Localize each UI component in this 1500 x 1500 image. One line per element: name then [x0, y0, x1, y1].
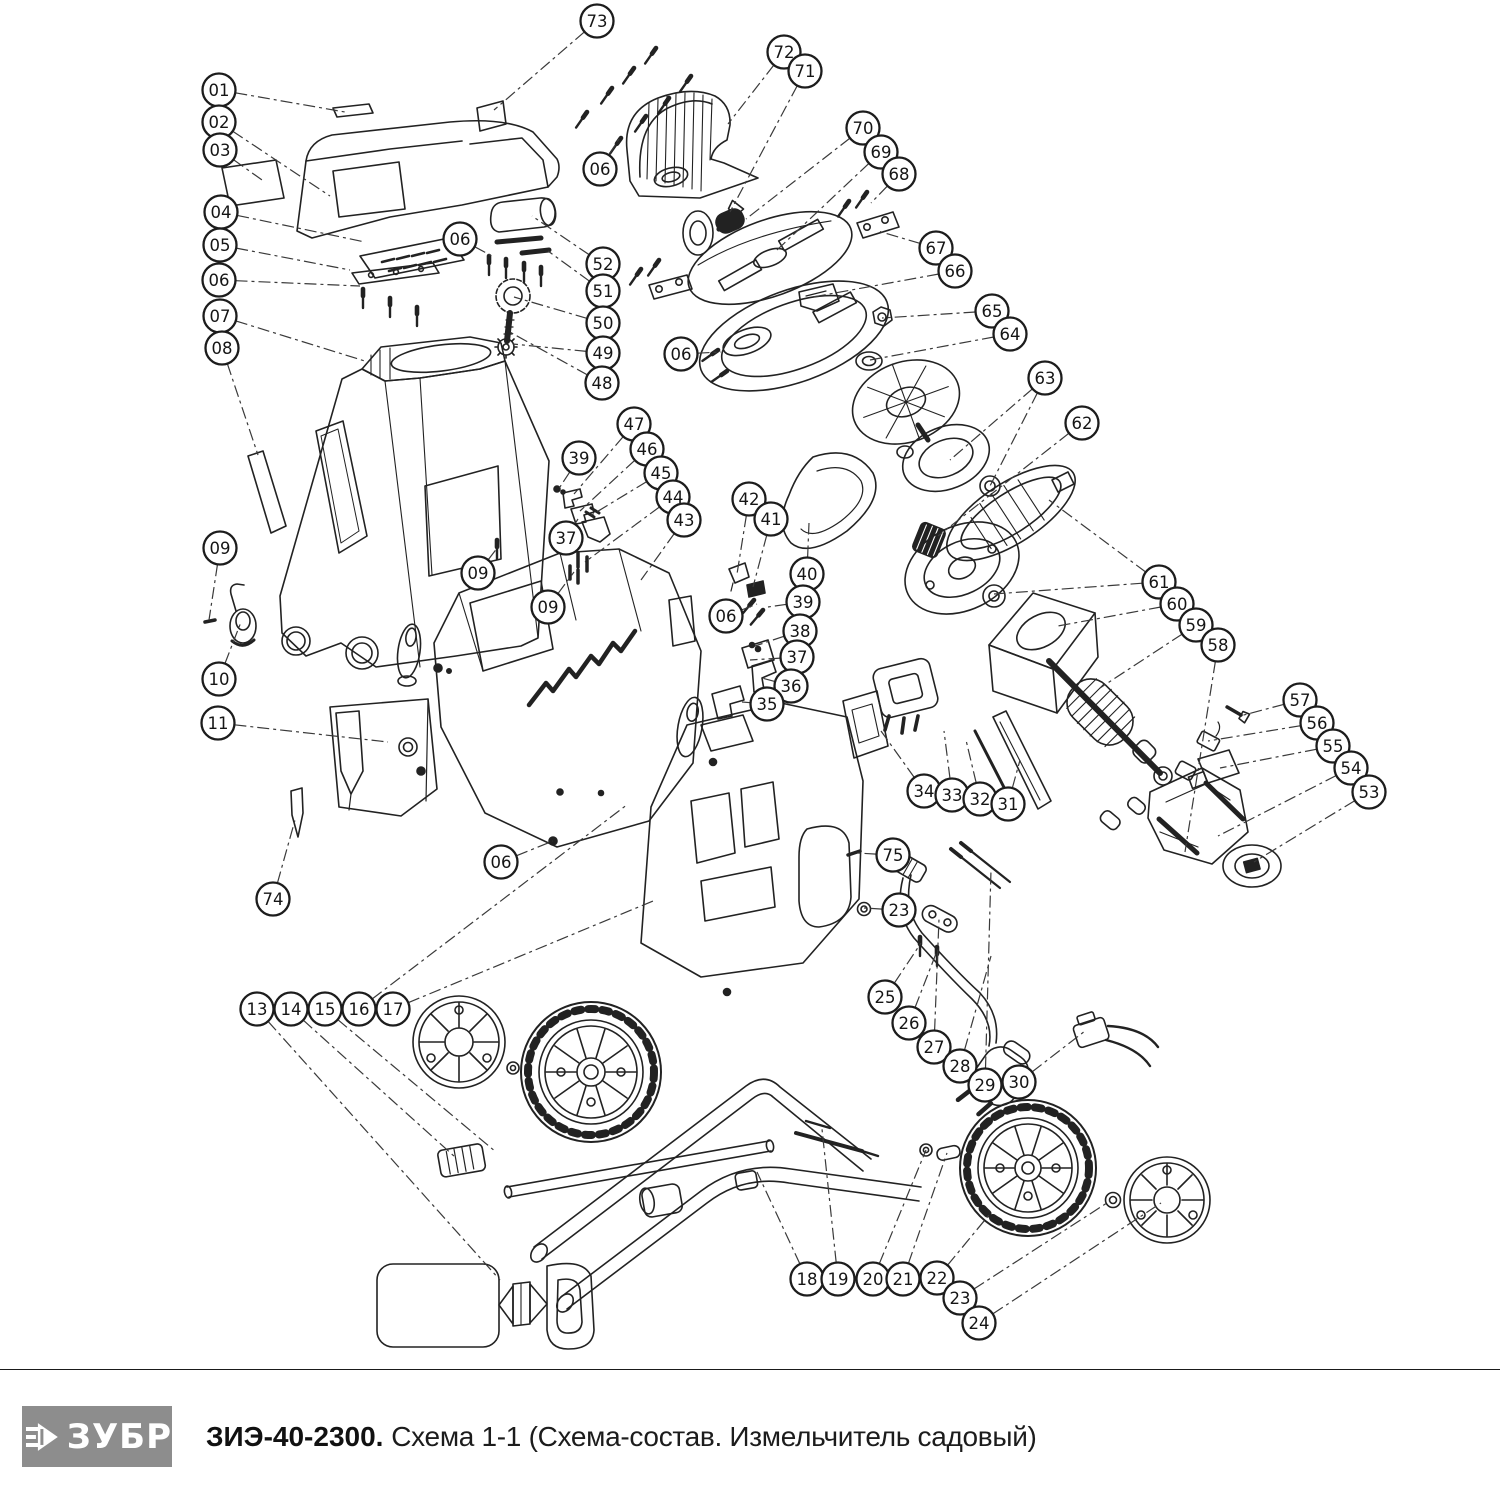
- part-motor: [890, 448, 1172, 785]
- svg-text:40: 40: [797, 565, 818, 584]
- callout-35: 35: [751, 688, 784, 721]
- leader-line-09: [558, 572, 574, 594]
- svg-text:15: 15: [315, 1000, 336, 1019]
- leader-line-07: [236, 321, 368, 362]
- svg-text:32: 32: [970, 790, 991, 809]
- leader-line-30: [1032, 1031, 1085, 1072]
- leader-line-13: [268, 1021, 500, 1280]
- callout-06: 06: [710, 600, 743, 633]
- leader-line-17: [408, 901, 653, 1003]
- leader-line-59: [1100, 634, 1182, 688]
- svg-text:10: 10: [209, 670, 230, 689]
- leader-line-11: [234, 725, 388, 742]
- zubr-logo: ЗУБР: [22, 1406, 172, 1467]
- brand-name: ЗУБР: [67, 1417, 172, 1457]
- svg-text:37: 37: [556, 529, 577, 548]
- svg-text:42: 42: [739, 490, 760, 509]
- svg-text:35: 35: [757, 695, 778, 714]
- leader-line-25: [894, 943, 921, 983]
- svg-text:34: 34: [914, 782, 935, 801]
- callout-21: 21: [887, 1263, 920, 1296]
- svg-text:06: 06: [590, 160, 611, 179]
- part-upper-funnel-housing: [280, 337, 549, 686]
- callout-48: 48: [586, 367, 619, 400]
- callout-numbers: 0102030405060708091011741314151617065251…: [202, 5, 1386, 1340]
- callout-15: 15: [309, 993, 342, 1026]
- part-pusher: [377, 1264, 594, 1349]
- leader-line-61: [994, 583, 1143, 594]
- leader-line-70: [746, 138, 850, 219]
- part-roller-and-knob: [489, 198, 557, 358]
- svg-text:02: 02: [209, 113, 230, 132]
- leader-line-55: [1220, 749, 1317, 768]
- svg-text:01: 01: [209, 81, 230, 100]
- svg-text:23: 23: [889, 901, 910, 920]
- svg-text:41: 41: [761, 510, 782, 529]
- svg-text:67: 67: [926, 239, 947, 258]
- title-block: ЗУБР ЗИЭ-40-2300. Схема 1-1 (Схема-соста…: [0, 1369, 1500, 1500]
- svg-text:49: 49: [593, 344, 614, 363]
- callout-06: 06: [485, 846, 518, 879]
- leader-line-51: [548, 251, 590, 281]
- callout-16: 16: [343, 993, 376, 1026]
- leader-line-45: [590, 482, 647, 517]
- callout-30: 30: [1003, 1066, 1036, 1099]
- svg-text:13: 13: [247, 1000, 268, 1019]
- callout-11: 11: [202, 707, 235, 740]
- leader-line-35: [742, 702, 751, 703]
- svg-text:56: 56: [1307, 714, 1328, 733]
- svg-text:14: 14: [281, 1000, 302, 1019]
- svg-text:72: 72: [774, 43, 795, 62]
- svg-text:17: 17: [383, 1000, 404, 1019]
- sticker-labels: [222, 101, 506, 533]
- callout-09: 09: [532, 591, 565, 624]
- leader-line-63: [990, 393, 1038, 486]
- leader-line-06: [236, 281, 361, 286]
- svg-text:61: 61: [1149, 573, 1170, 592]
- svg-text:05: 05: [210, 236, 231, 255]
- svg-text:33: 33: [942, 786, 963, 805]
- svg-text:43: 43: [674, 511, 695, 530]
- callout-37: 37: [550, 522, 583, 555]
- callout-49: 49: [587, 337, 620, 370]
- leader-line-48: [508, 331, 588, 375]
- callout-53: 53: [1353, 776, 1386, 809]
- svg-text:70: 70: [853, 119, 874, 138]
- svg-text:52: 52: [593, 255, 614, 274]
- callout-04: 04: [205, 196, 238, 229]
- leader-line-68: [871, 186, 888, 203]
- callout-39: 39: [563, 442, 596, 475]
- svg-text:73: 73: [587, 12, 608, 31]
- leader-line-66: [813, 274, 939, 297]
- svg-text:39: 39: [793, 593, 814, 612]
- callout-31: 31: [992, 788, 1025, 821]
- callout-63: 63: [1029, 362, 1062, 395]
- leader-line-26: [915, 951, 937, 1008]
- callout-26: 26: [893, 1007, 926, 1040]
- model-number: ЗИЭ-40-2300.: [206, 1421, 383, 1452]
- leader-line-24: [993, 1203, 1161, 1314]
- svg-text:28: 28: [950, 1057, 971, 1076]
- leader-line-22: [948, 1215, 990, 1265]
- svg-text:46: 46: [637, 440, 658, 459]
- svg-text:23: 23: [950, 1289, 971, 1308]
- svg-text:74: 74: [263, 890, 284, 909]
- callout-62: 62: [1066, 407, 1099, 440]
- schema-subtitle: Схема 1-1 (Схема-состав. Измельчитель са…: [391, 1421, 1036, 1452]
- svg-text:06: 06: [491, 853, 512, 872]
- callout-20: 20: [857, 1263, 890, 1296]
- leader-line-05: [236, 248, 350, 270]
- svg-text:11: 11: [208, 714, 229, 733]
- zubr-arrow-icon: [22, 1417, 62, 1457]
- svg-text:36: 36: [781, 677, 802, 696]
- leader-line-74: [277, 820, 295, 883]
- callout-06: 06: [665, 338, 698, 371]
- leader-line-06: [609, 139, 619, 155]
- svg-text:19: 19: [828, 1270, 849, 1289]
- callout-10: 10: [203, 663, 236, 696]
- leader-line-39: [558, 472, 570, 490]
- leader-line-36: [762, 678, 775, 682]
- svg-text:53: 53: [1359, 783, 1380, 802]
- svg-text:06: 06: [209, 271, 230, 290]
- part-top-cover: [297, 121, 559, 238]
- svg-text:59: 59: [1186, 616, 1207, 635]
- callout-06: 06: [203, 264, 236, 297]
- callout-71: 71: [789, 55, 822, 88]
- leader-line-18: [757, 1172, 800, 1264]
- leader-line-56: [1208, 726, 1301, 741]
- svg-text:64: 64: [1000, 325, 1021, 344]
- svg-text:39: 39: [569, 449, 590, 468]
- part-front-shell: [641, 703, 863, 996]
- callout-17: 17: [377, 993, 410, 1026]
- callout-58: 58: [1202, 629, 1235, 662]
- callout-03: 03: [204, 134, 237, 167]
- leader-line-20: [879, 1150, 926, 1264]
- leader-line-34: [881, 731, 914, 778]
- leader-line-58: [1185, 661, 1215, 852]
- callout-75: 75: [877, 839, 910, 872]
- svg-text:71: 71: [795, 62, 816, 81]
- svg-text:75: 75: [883, 846, 904, 865]
- page: 0102030405060708091011741314151617065251…: [0, 0, 1500, 1500]
- leader-line-33: [944, 731, 950, 779]
- svg-text:06: 06: [450, 230, 471, 249]
- part-wheel-right: [960, 1100, 1096, 1236]
- svg-text:09: 09: [210, 539, 231, 558]
- leader-line-60: [1058, 607, 1161, 626]
- leader-line-06: [475, 247, 492, 256]
- schema-caption: ЗИЭ-40-2300. Схема 1-1 (Схема-состав. Из…: [206, 1421, 1037, 1453]
- part-deflector: [782, 453, 875, 548]
- svg-text:63: 63: [1035, 369, 1056, 388]
- svg-text:62: 62: [1072, 414, 1093, 433]
- part-cutting-disc-assembly: [630, 192, 903, 413]
- callout-50: 50: [587, 307, 620, 340]
- callout-41: 41: [755, 503, 788, 536]
- callout-06: 06: [584, 153, 617, 186]
- leader-line-50: [514, 297, 587, 318]
- callout-66: 66: [939, 255, 972, 288]
- svg-text:03: 03: [210, 141, 231, 160]
- leader-line-16: [372, 804, 628, 999]
- leader-line-44: [585, 507, 660, 562]
- part-brush-endcap: [1098, 703, 1281, 887]
- svg-text:51: 51: [593, 282, 614, 301]
- svg-text:66: 66: [945, 262, 966, 281]
- svg-text:20: 20: [863, 1270, 884, 1289]
- svg-text:26: 26: [899, 1014, 920, 1033]
- part-hubcap-right: [1106, 1157, 1211, 1243]
- leader-line-57: [1240, 704, 1284, 716]
- leader-line-41: [753, 535, 767, 587]
- leader-line-65: [882, 312, 976, 318]
- part-spindle-gear: [841, 307, 1000, 559]
- callout-14: 14: [275, 993, 308, 1026]
- svg-text:09: 09: [538, 598, 559, 617]
- leader-line-64: [870, 337, 994, 360]
- screw-grid: [576, 48, 691, 154]
- part-blade-plate: [352, 238, 464, 326]
- part-discharge-door: [291, 699, 437, 837]
- svg-text:22: 22: [927, 1269, 948, 1288]
- leader-line-39: [768, 604, 787, 607]
- svg-text:47: 47: [624, 415, 645, 434]
- svg-text:57: 57: [1290, 691, 1311, 710]
- svg-text:30: 30: [1009, 1073, 1030, 1092]
- leader-line-27: [935, 919, 939, 1031]
- svg-text:69: 69: [871, 143, 892, 162]
- leader-line-49: [513, 344, 587, 351]
- svg-text:21: 21: [893, 1270, 914, 1289]
- svg-text:07: 07: [210, 307, 231, 326]
- svg-text:16: 16: [349, 1000, 370, 1019]
- callout-23: 23: [883, 894, 916, 927]
- callout-19: 19: [822, 1263, 855, 1296]
- leader-line-37: [750, 658, 781, 660]
- callout-43: 43: [668, 504, 701, 537]
- svg-text:37: 37: [787, 648, 808, 667]
- svg-text:50: 50: [593, 314, 614, 333]
- leader-line-73: [494, 32, 585, 110]
- callout-09: 09: [204, 532, 237, 565]
- svg-text:55: 55: [1323, 737, 1344, 756]
- leader-line-54: [1218, 776, 1336, 837]
- callout-39: 39: [787, 586, 820, 619]
- svg-text:25: 25: [875, 988, 896, 1007]
- part-lower-housing: [434, 549, 717, 847]
- leader-line-32: [966, 740, 976, 783]
- callout-73: 73: [581, 5, 614, 38]
- leader-line-14: [303, 1020, 455, 1157]
- leader-line-01: [235, 93, 345, 112]
- callout-37: 37: [781, 641, 814, 674]
- callout-18: 18: [791, 1263, 824, 1296]
- exploded-parts-diagram: 0102030405060708091011741314151617065251…: [0, 0, 1500, 1369]
- svg-text:09: 09: [468, 564, 489, 583]
- callout-06: 06: [444, 223, 477, 256]
- callout-09: 09: [462, 557, 495, 590]
- svg-text:27: 27: [924, 1038, 945, 1057]
- callout-74: 74: [257, 883, 290, 916]
- part-hubcap-left: [413, 996, 519, 1088]
- svg-text:58: 58: [1208, 636, 1229, 655]
- svg-text:54: 54: [1341, 759, 1362, 778]
- callout-01: 01: [203, 74, 236, 107]
- svg-text:29: 29: [975, 1076, 996, 1095]
- leader-line-61: [1049, 500, 1146, 572]
- svg-text:24: 24: [969, 1314, 990, 1333]
- callout-64: 64: [994, 318, 1027, 351]
- callout-13: 13: [241, 993, 274, 1026]
- svg-text:06: 06: [716, 607, 737, 626]
- svg-text:60: 60: [1167, 595, 1188, 614]
- svg-text:06: 06: [671, 345, 692, 364]
- callout-24: 24: [963, 1307, 996, 1340]
- leader-line-21: [908, 1153, 947, 1263]
- callout-51: 51: [587, 275, 620, 308]
- svg-text:31: 31: [998, 795, 1019, 814]
- leader-line-69: [777, 163, 869, 250]
- svg-text:65: 65: [982, 302, 1003, 321]
- callout-25: 25: [869, 981, 902, 1014]
- leader-line-08: [227, 364, 258, 455]
- svg-text:38: 38: [790, 622, 811, 641]
- svg-text:48: 48: [592, 374, 613, 393]
- callout-68: 68: [883, 158, 916, 191]
- callout-29: 29: [969, 1069, 1002, 1102]
- leader-line-72: [728, 65, 774, 124]
- svg-text:08: 08: [212, 339, 233, 358]
- part-wheel-left: [521, 1002, 661, 1142]
- svg-text:68: 68: [889, 165, 910, 184]
- callout-07: 07: [204, 300, 237, 333]
- leader-line-19: [822, 1129, 836, 1263]
- leader-line-40: [808, 523, 809, 558]
- svg-text:18: 18: [797, 1270, 818, 1289]
- leader-line-71: [730, 86, 797, 212]
- leader-line-09: [209, 564, 218, 620]
- callout-08: 08: [206, 332, 239, 365]
- leader-line-67: [878, 231, 920, 243]
- leader-line-06: [516, 841, 553, 856]
- callout-05: 05: [204, 229, 237, 262]
- svg-text:04: 04: [211, 203, 232, 222]
